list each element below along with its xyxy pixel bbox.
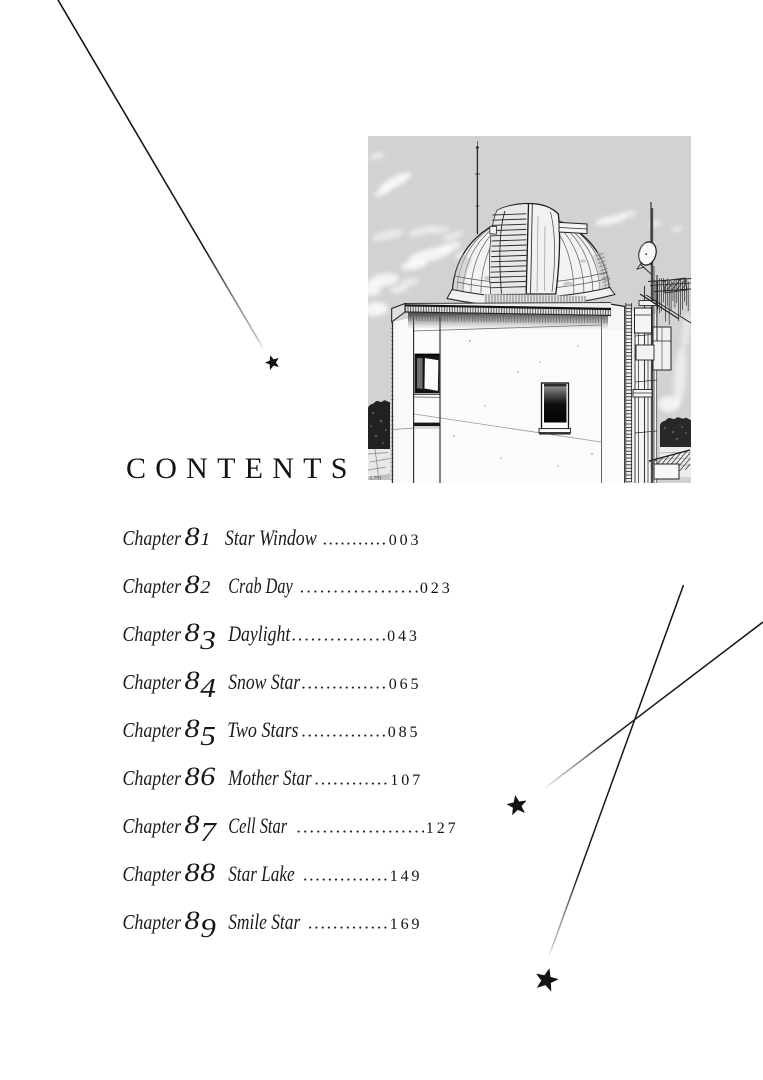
svg-text:84: 84 bbox=[185, 667, 217, 704]
svg-text:Mother Star: Mother Star bbox=[227, 766, 312, 791]
svg-text:87: 87 bbox=[185, 811, 218, 848]
svg-text:169: 169 bbox=[390, 916, 423, 933]
svg-text:043: 043 bbox=[387, 628, 420, 645]
svg-text:Cell Star: Cell Star bbox=[228, 815, 287, 839]
svg-text:Chapter: Chapter bbox=[123, 576, 182, 599]
svg-text:003: 003 bbox=[389, 532, 422, 549]
svg-text:107: 107 bbox=[390, 772, 423, 789]
svg-text:Smile Star: Smile Star bbox=[228, 910, 300, 934]
svg-text:Star Lake: Star Lake bbox=[228, 862, 295, 886]
svg-text:Star Window: Star Window bbox=[225, 526, 317, 550]
svg-text:065: 065 bbox=[389, 676, 422, 693]
svg-text:CONTENTS: CONTENTS bbox=[126, 452, 357, 485]
svg-text:Snow Star: Snow Star bbox=[228, 670, 300, 694]
svg-text:83: 83 bbox=[185, 619, 217, 656]
svg-text:Chapter: Chapter bbox=[123, 672, 182, 695]
svg-text:023: 023 bbox=[420, 580, 453, 597]
svg-text:Daylight: Daylight bbox=[227, 622, 290, 646]
svg-text:Chapter: Chapter bbox=[123, 864, 182, 887]
svg-text:Chapter: Chapter bbox=[123, 720, 182, 743]
svg-text:86: 86 bbox=[185, 763, 217, 792]
svg-text:Chapter: Chapter bbox=[123, 816, 182, 839]
svg-text:Chapter: Chapter bbox=[123, 624, 182, 647]
svg-text:88: 88 bbox=[185, 859, 217, 888]
svg-text:85: 85 bbox=[185, 715, 217, 752]
svg-text:149: 149 bbox=[390, 868, 423, 885]
svg-text:Chapter: Chapter bbox=[123, 768, 182, 791]
svg-text:89: 89 bbox=[185, 907, 217, 944]
svg-text:Chapter: Chapter bbox=[123, 528, 182, 551]
svg-text:127: 127 bbox=[426, 820, 459, 837]
svg-text:81: 81 bbox=[185, 523, 212, 552]
svg-text:Chapter: Chapter bbox=[123, 912, 182, 935]
svg-text:085: 085 bbox=[388, 724, 421, 741]
svg-text:Two Stars: Two Stars bbox=[227, 718, 298, 742]
svg-text:82: 82 bbox=[185, 571, 212, 600]
svg-text:Crab Day: Crab Day bbox=[228, 575, 293, 599]
